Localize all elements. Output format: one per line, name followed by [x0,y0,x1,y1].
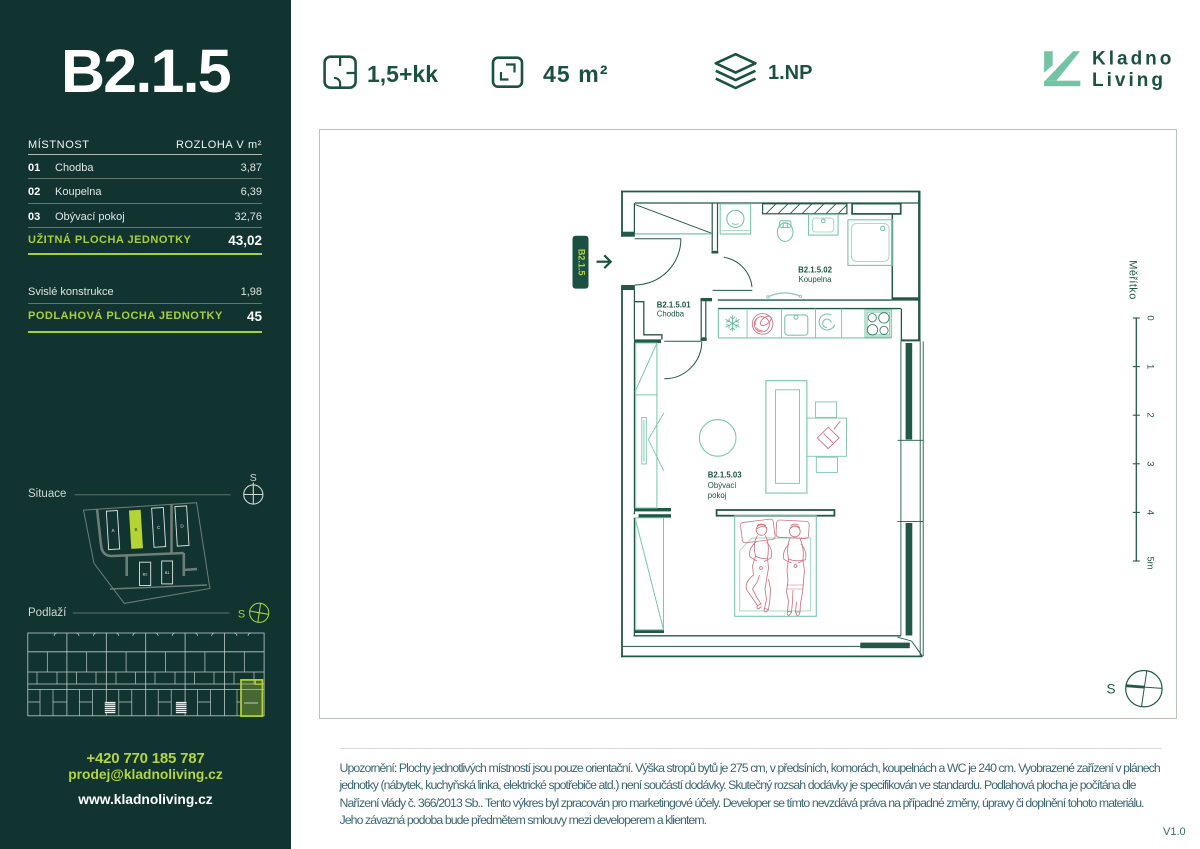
svg-text:B2.1.5.03: B2.1.5.03 [708,471,742,480]
svg-text:B2.1.5.02: B2.1.5.02 [798,266,832,275]
svg-text:4: 4 [1145,510,1156,515]
svg-text:Měřítko: Měřítko [1127,260,1139,299]
svg-text:0: 0 [1145,315,1156,320]
svg-text:B2.1.5: B2.1.5 [576,249,586,276]
svg-text:B2.1.5.01: B2.1.5.01 [657,301,691,310]
svg-text:3: 3 [1145,461,1156,466]
svg-text:Obývací: Obývací [708,481,737,490]
svg-text:5m: 5m [1145,556,1156,569]
svg-text:Chodba: Chodba [657,310,685,319]
svg-text:2: 2 [1145,413,1156,418]
svg-text:Koupelna: Koupelna [799,275,833,284]
svg-text:pokoj: pokoj [708,491,727,500]
svg-text:1: 1 [1145,364,1156,369]
svg-text:S: S [1106,682,1115,697]
